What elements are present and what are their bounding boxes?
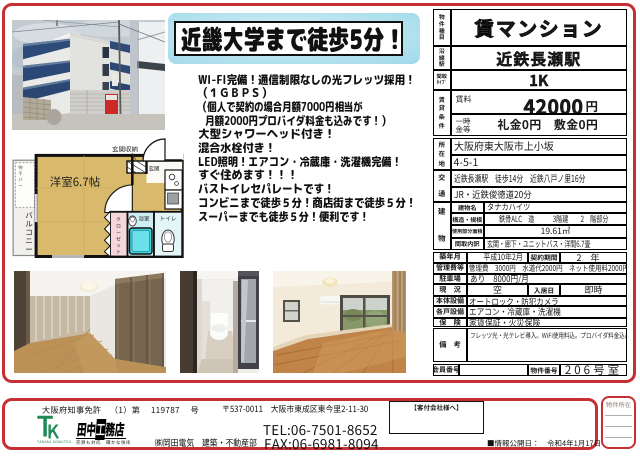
svg-text:TANAKA KOMUTEN: TANAKA KOMUTEN — [37, 439, 71, 444]
svg-text:ー: ー — [18, 183, 22, 189]
svg-text:玄関: 玄関 — [148, 165, 160, 173]
svg-text:洋室6.7帖: 洋室6.7帖 — [50, 174, 100, 190]
svg-text:トイレ: トイレ — [160, 215, 177, 223]
svg-text:ー: ー — [25, 244, 33, 255]
svg-text:浴室: 浴室 — [138, 215, 150, 223]
svg-text:ト: ト — [116, 249, 121, 256]
svg-text:玄関収納: 玄関収納 — [112, 143, 139, 153]
